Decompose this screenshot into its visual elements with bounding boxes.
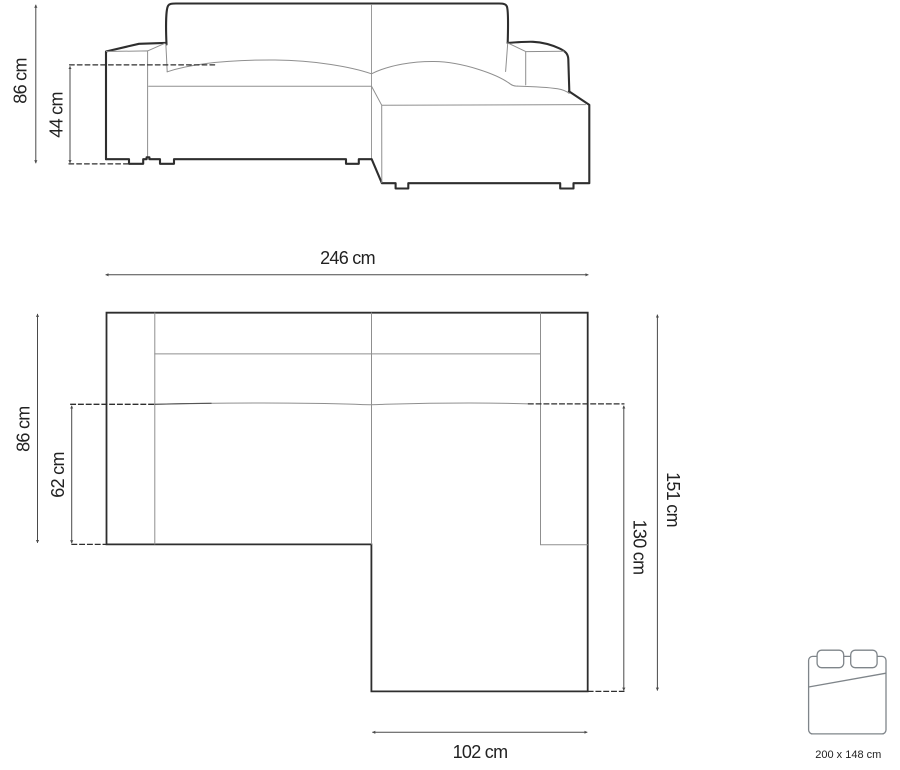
svg-text:246 cm: 246 cm: [320, 248, 375, 268]
svg-text:86 cm: 86 cm: [14, 406, 34, 451]
svg-text:102 cm: 102 cm: [453, 742, 508, 762]
svg-text:44 cm: 44 cm: [46, 92, 66, 137]
svg-text:86 cm: 86 cm: [11, 58, 31, 103]
svg-text:200 x 148 cm: 200 x 148 cm: [815, 749, 881, 761]
svg-text:151 cm: 151 cm: [663, 472, 683, 527]
svg-text:62 cm: 62 cm: [48, 452, 68, 497]
svg-text:130 cm: 130 cm: [629, 520, 649, 575]
